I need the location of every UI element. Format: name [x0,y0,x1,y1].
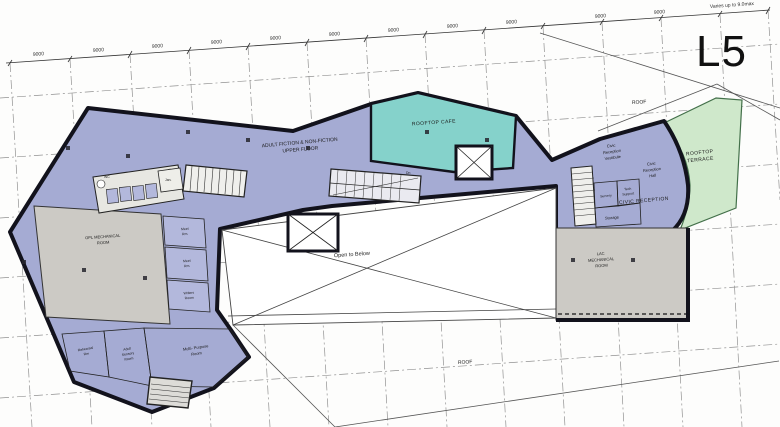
opl-mech-label: ROOM [97,240,110,246]
tech-support-label: Tech [624,187,632,192]
roof-label-lower: ROOF [458,359,473,366]
dim-label: 9000 [93,47,105,54]
roof-label-upper: ROOF [632,99,647,106]
stair-top [183,165,247,197]
elevator-shaft-west [288,214,338,251]
floor-plan-sheet: 9000 9000 9000 9000 9000 9000 9000 9000 … [0,0,780,427]
stair-right-wing [571,166,596,226]
meet-rm-2-label: Meet [183,259,191,264]
dim-label: 9000 [270,35,282,42]
janitor-label: Jan. [165,178,171,182]
level-tag: L5 [696,27,747,76]
writers-room-label: Room [185,296,194,301]
lac-mech-label: ROOM [595,263,608,269]
dimension-labels: 9000 9000 9000 9000 9000 9000 9000 9000 … [33,1,755,58]
dim-label: 9000 [388,27,400,34]
civic-hall-label: Hall [649,173,657,179]
dim-label: 9000 [654,9,666,16]
civic-hall-label: Civic [647,161,656,167]
dim-label: 9000 [329,31,341,38]
escalator-dn-label: Dn [406,171,410,175]
dim-label: 9000 [447,23,459,30]
opl-mechanical-room: OPL MECHANICAL ROOM [34,206,170,324]
writers-room-label: Writers [183,291,194,296]
lac-mechanical-room: LAC MECHANICAL ROOM [556,228,688,320]
meet-rm-2-label: Rm. [184,264,191,268]
dim-label: 9000 [506,19,518,26]
lac-mech-label: LAC [597,251,605,257]
dim-label: 9000 [33,51,45,58]
dimension-note: Varies up to 9.0max [710,1,755,10]
dim-label: 9000 [211,39,223,46]
meet-rm-1-label: Meet [181,227,189,232]
wc-fixture [97,180,105,188]
rooftop-cafe-area: ROOFTOP CAFE [371,93,516,172]
elevator-shaft-east [456,146,492,179]
dim-label: 9000 [595,13,607,20]
floor-plan-drawing: 9000 9000 9000 9000 9000 9000 9000 9000 … [0,0,780,427]
wc-label: WC [104,175,110,179]
stair-bottom [147,377,192,408]
meet-rm-1-label: Rm. [182,232,189,236]
dim-label: 9000 [152,43,164,50]
